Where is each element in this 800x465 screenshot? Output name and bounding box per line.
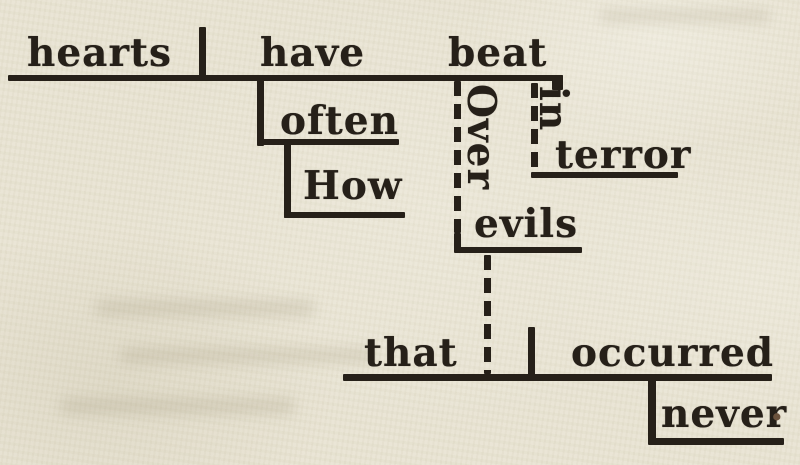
never-shelf-line <box>648 438 784 445</box>
show-through-smudge <box>120 348 375 363</box>
word-subject: hearts <box>27 34 172 73</box>
word-main-verb: beat <box>448 34 547 73</box>
show-through-smudge <box>60 398 295 414</box>
word-prep-in: in <box>533 86 572 131</box>
word-obj-terror: terror <box>555 136 691 175</box>
evils-shelf-line <box>454 247 582 253</box>
scanned-page: hearts have beat often How Over evils in… <box>0 0 800 465</box>
end-period: . <box>770 388 784 427</box>
word-rel-adverb-never: never <box>661 395 787 434</box>
show-through-smudge <box>600 10 770 22</box>
adverb-stem-never <box>648 379 656 444</box>
word-adverb-how: How <box>303 167 402 206</box>
how-shelf-line <box>284 212 405 218</box>
show-through-smudge <box>95 300 315 316</box>
word-prep-over: Over <box>461 84 500 190</box>
word-obj-evils: evils <box>474 205 578 244</box>
word-rel-verb: occurred <box>571 334 774 373</box>
subject-verb-divider <box>199 27 206 81</box>
word-adverb-often: often <box>280 102 399 141</box>
word-rel-pronoun: that <box>364 334 458 373</box>
word-aux-verb: have <box>260 34 365 73</box>
adverb-stem-often <box>257 77 264 146</box>
adverb-stem-how <box>284 141 291 218</box>
relative-subject-verb-divider <box>528 327 535 378</box>
evils-clause-dashed-connector <box>484 255 491 374</box>
